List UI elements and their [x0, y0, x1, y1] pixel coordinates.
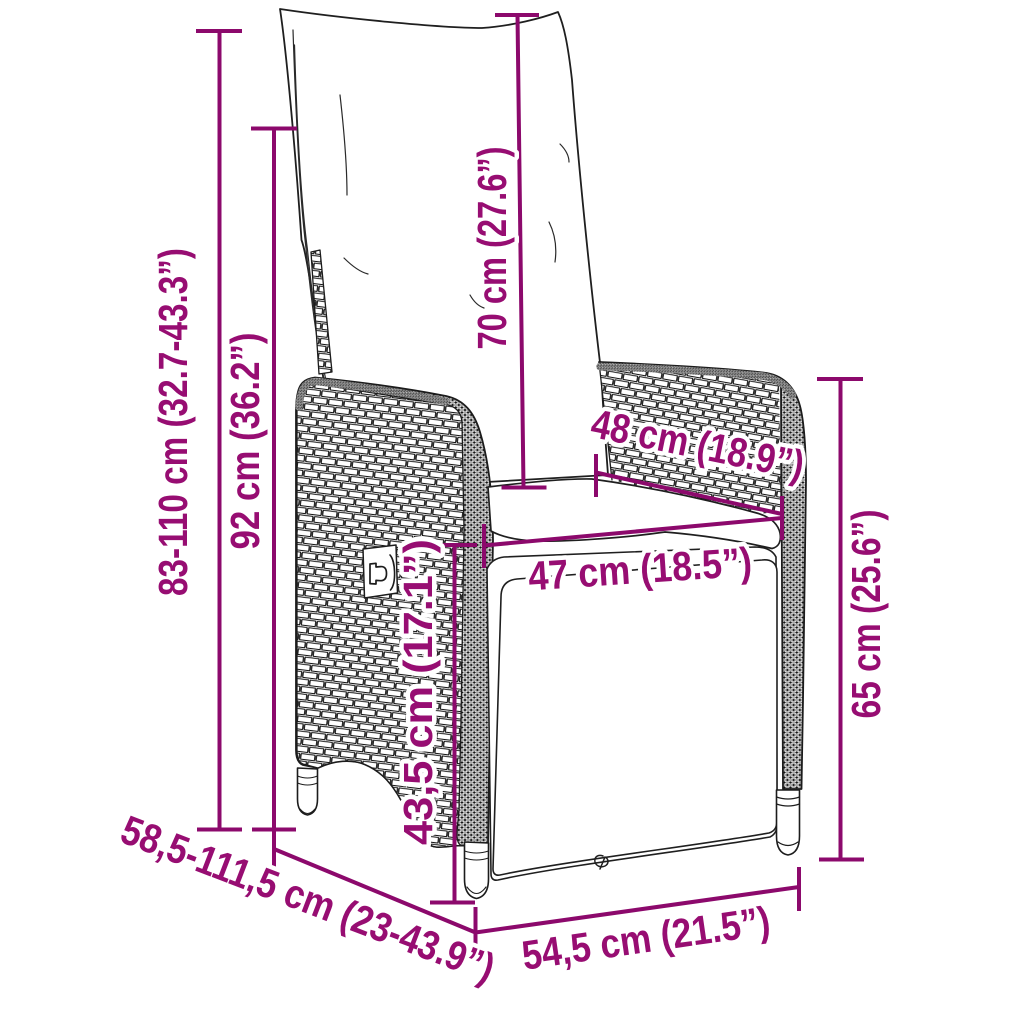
svg-text:70 cm (27.6”): 70 cm (27.6”) [469, 147, 515, 350]
svg-text:43,5 cm (17.1”): 43,5 cm (17.1”) [395, 539, 441, 845]
svg-text:65 cm (25.6”): 65 cm (25.6”) [843, 510, 889, 719]
svg-text:92 cm (36.2”): 92 cm (36.2”) [222, 333, 268, 550]
svg-text:83-110 cm (32.7-43.3”): 83-110 cm (32.7-43.3”) [150, 248, 196, 596]
